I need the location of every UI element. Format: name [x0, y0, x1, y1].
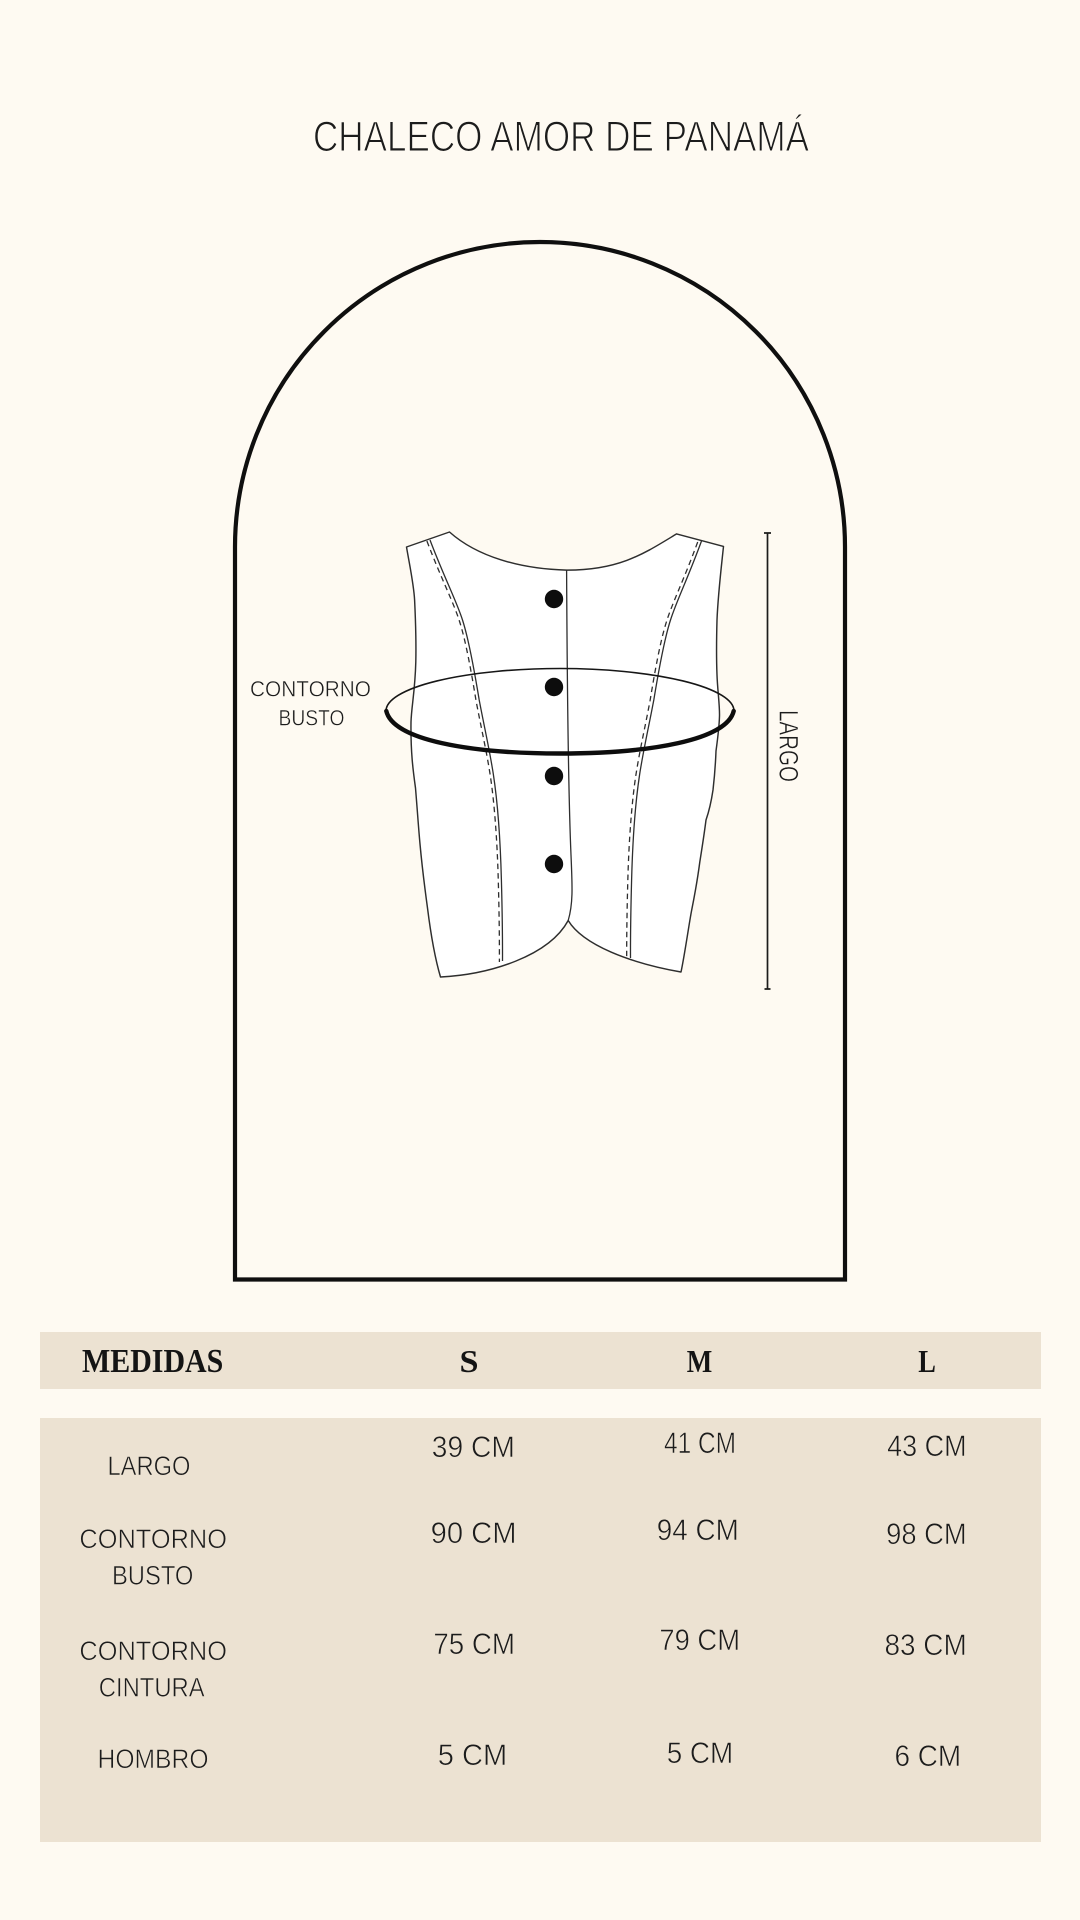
svg-text:CONTORNO: CONTORNO	[79, 1636, 227, 1666]
svg-text:90 CM: 90 CM	[431, 1517, 517, 1550]
svg-text:CHALECO AMOR DE PANAMÁ: CHALECO AMOR DE PANAMÁ	[313, 113, 809, 161]
svg-text:98 CM: 98 CM	[886, 1518, 967, 1551]
svg-text:L: L	[918, 1343, 936, 1379]
svg-text:39 CM: 39 CM	[432, 1431, 515, 1464]
svg-text:6 CM: 6 CM	[894, 1740, 961, 1773]
svg-text:5 CM: 5 CM	[438, 1739, 507, 1772]
svg-text:S: S	[460, 1343, 479, 1379]
svg-text:5 CM: 5 CM	[667, 1737, 734, 1770]
svg-text:94 CM: 94 CM	[657, 1514, 739, 1547]
svg-text:CONTORNO: CONTORNO	[79, 1524, 227, 1554]
svg-text:41 CM: 41 CM	[664, 1427, 736, 1460]
svg-text:BUSTO: BUSTO	[279, 706, 345, 731]
svg-text:LARGO: LARGO	[774, 710, 804, 782]
svg-text:LARGO: LARGO	[108, 1451, 191, 1481]
svg-text:BUSTO: BUSTO	[112, 1560, 194, 1590]
svg-text:CINTURA: CINTURA	[99, 1673, 205, 1703]
svg-text:HOMBRO: HOMBRO	[98, 1744, 209, 1774]
svg-text:CONTORNO: CONTORNO	[250, 677, 371, 702]
svg-text:83 CM: 83 CM	[884, 1629, 966, 1662]
svg-text:43 CM: 43 CM	[887, 1430, 967, 1463]
svg-text:79 CM: 79 CM	[659, 1624, 740, 1657]
svg-text:M: M	[687, 1343, 713, 1379]
svg-text:MEDIDAS: MEDIDAS	[82, 1343, 223, 1380]
svg-text:75 CM: 75 CM	[433, 1628, 515, 1661]
